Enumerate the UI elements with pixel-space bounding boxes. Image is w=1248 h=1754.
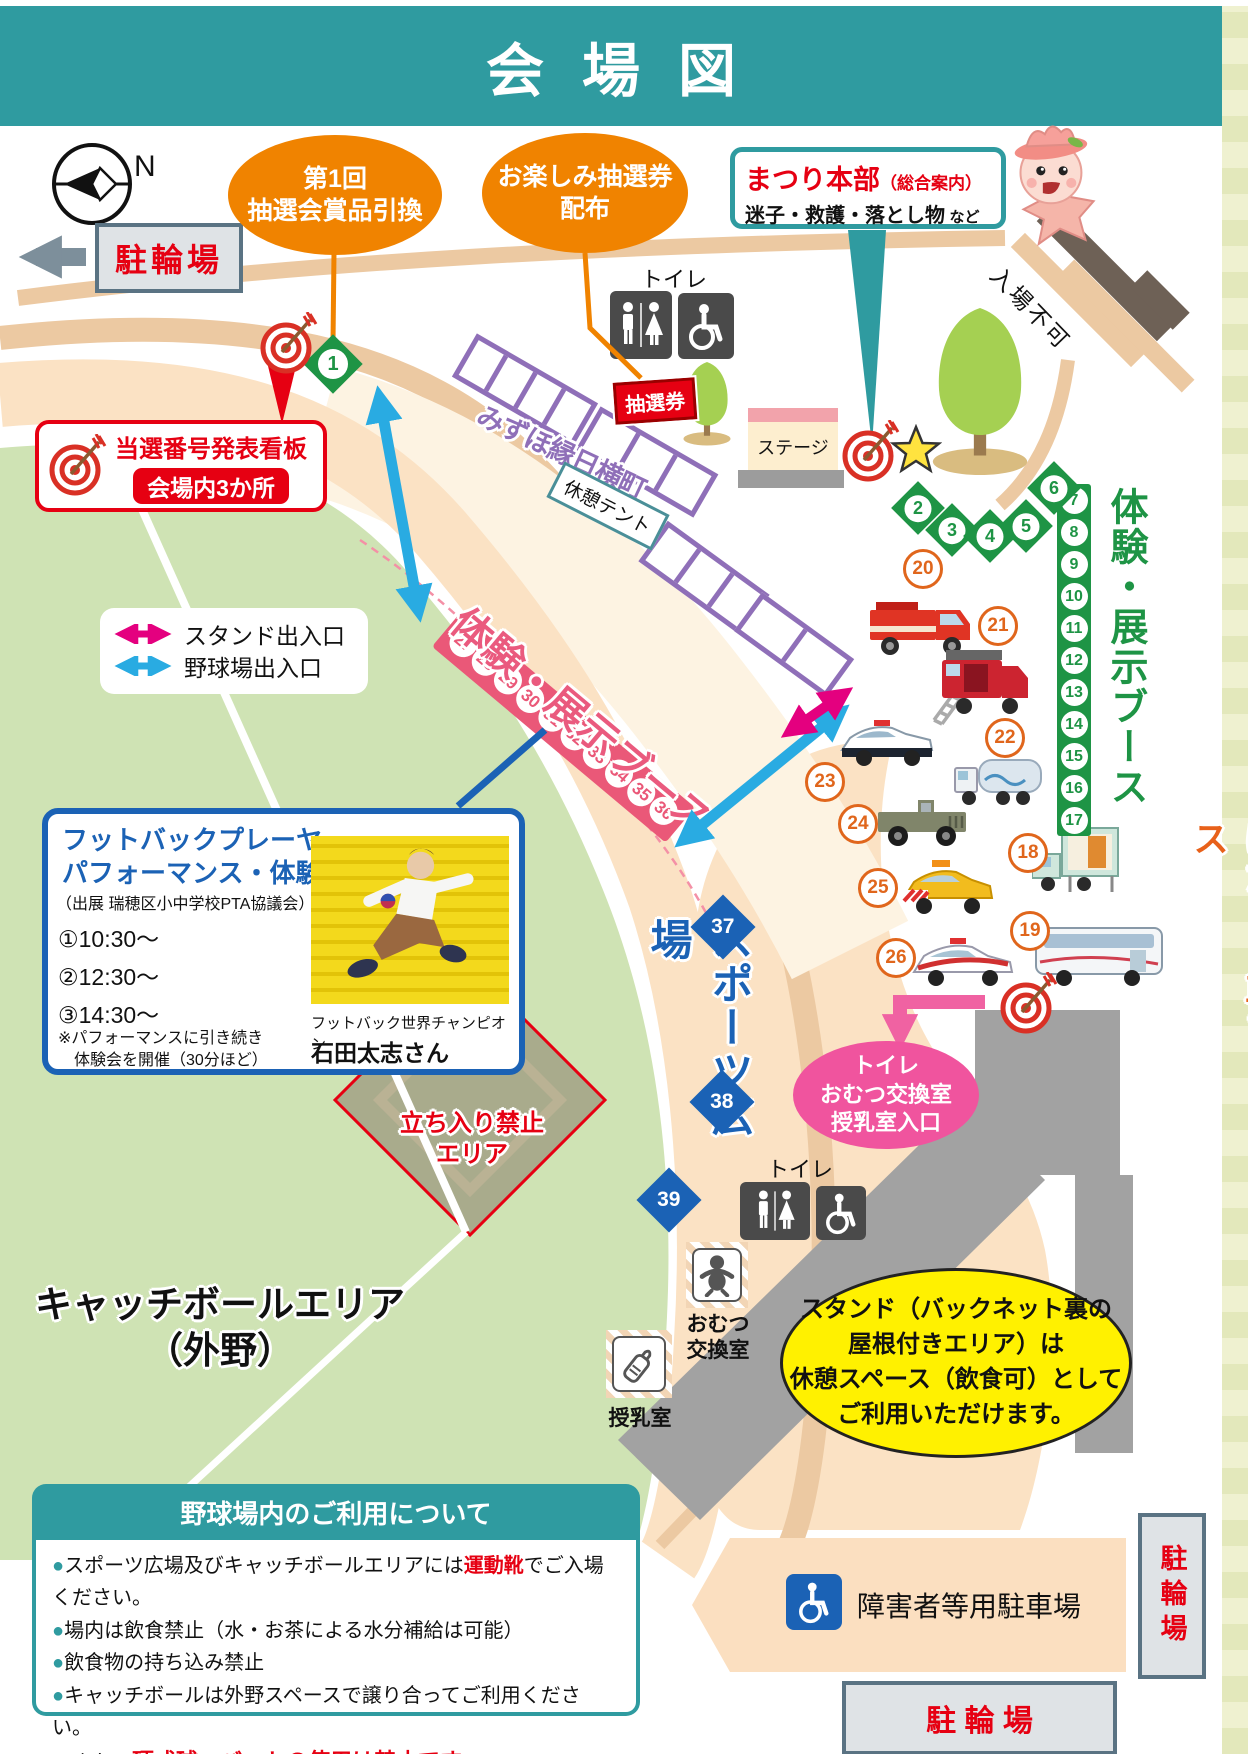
footbag-exhibitor: （出展 瑞穂区小中学校PTA協議会） (56, 890, 314, 914)
ballpark-entrance-arrow-icon (112, 656, 174, 676)
rule-item: ●場内は飲食禁止（水・お茶による水分補給は可能） (52, 1615, 620, 1647)
venue-map-page: 会場図 N 駐輪場 第1回 抽選会賞品引換 お楽しみ抽選券 配布 まつり本部（総… (0, 0, 1248, 1754)
stand-entrance-arrow-icon (112, 624, 174, 644)
footbag-photo (311, 836, 509, 1004)
stand-notice-oval: スタンド（バックネット裏の 屋根付きエリア）は 休憩スペース（飲食可）として ご… (780, 1268, 1132, 1458)
vehicle-number-label: 22 (985, 718, 1025, 758)
target-icon (258, 312, 318, 376)
vehicle-number-label: 26 (876, 938, 916, 978)
winning-board-box: 当選番号発表看板 会場内3か所 (35, 420, 327, 512)
nursing-entrance-oval: トイレ おむつ交換室 授乳室入口 (793, 1041, 979, 1149)
winning-board-title: 当選番号発表看板 (107, 429, 315, 464)
footbag-time-2: ②12:30～ (58, 958, 159, 992)
rules-header: 野球場内のご利用について (32, 1484, 640, 1540)
vehicle-number-label: 21 (978, 606, 1018, 646)
footbag-time-1: ①10:30～ (58, 920, 159, 954)
vehicle-number-label: 23 (805, 762, 845, 802)
prize-exchange-balloon: 第1回 抽選会賞品引換 (228, 135, 442, 255)
winning-board-badge: 会場内3か所 (133, 468, 289, 504)
target-icon (998, 972, 1058, 1036)
mascot-character-icon (998, 120, 1110, 252)
rule-item: ●キャッチボールは外野スペースで譲り合ってご利用ください。 (52, 1680, 620, 1745)
hq-subtitle: （総合案内） (880, 174, 982, 193)
footbag-time-3: ③14:30～ (58, 996, 159, 1030)
legend-stand-label: スタンド出入口 (184, 617, 345, 651)
vehicle-number-label: 25 (858, 868, 898, 908)
vehicle-number-label: 24 (838, 804, 878, 844)
hq-title: まつり本部 (745, 165, 880, 195)
rule-item: また、硬式球・バットの使用は禁止です。 (52, 1744, 620, 1754)
ticket-distribution-balloon: お楽しみ抽選券 配布 (482, 133, 688, 253)
champion-name: 石田太志さん (311, 1034, 449, 1068)
target-icon (47, 434, 107, 498)
rule-item: ●飲食物の持ち込み禁止 (52, 1647, 620, 1679)
star-icon (890, 424, 942, 476)
legend-box: スタンド出入口 野球場出入口 (100, 608, 368, 694)
vehicle-number-label: 18 (1008, 833, 1048, 873)
footbag-info-box: フットバックプレーヤー パフォーマンス・体験会 （出展 瑞穂区小中学校PTA協議… (42, 808, 525, 1075)
vehicle-number-label: 20 (903, 549, 943, 589)
footbag-note: ※パフォーマンスに引き続き 体験会を開催（30分ほど） (58, 1028, 268, 1073)
rules-title: 野球場内のご利用について (180, 1494, 491, 1531)
vehicle-number-label: 19 (1010, 911, 1050, 951)
festival-hq-box: まつり本部（総合案内） 迷子・救護・落とし物 など (730, 147, 1006, 229)
legend-ballpark-label: 野球場出入口 (184, 649, 322, 683)
hq-desc: 迷子・救護・落とし物 (745, 205, 945, 227)
rules-box: 野球場内のご利用について ●スポーツ広場及びキャッチボールエリアには運動靴でご入… (32, 1484, 640, 1716)
footbag-title: フットバックプレーヤー パフォーマンス・体験会 (62, 824, 348, 889)
rule-item: ●スポーツ広場及びキャッチボールエリアには運動靴でご入場ください。 (52, 1550, 620, 1615)
